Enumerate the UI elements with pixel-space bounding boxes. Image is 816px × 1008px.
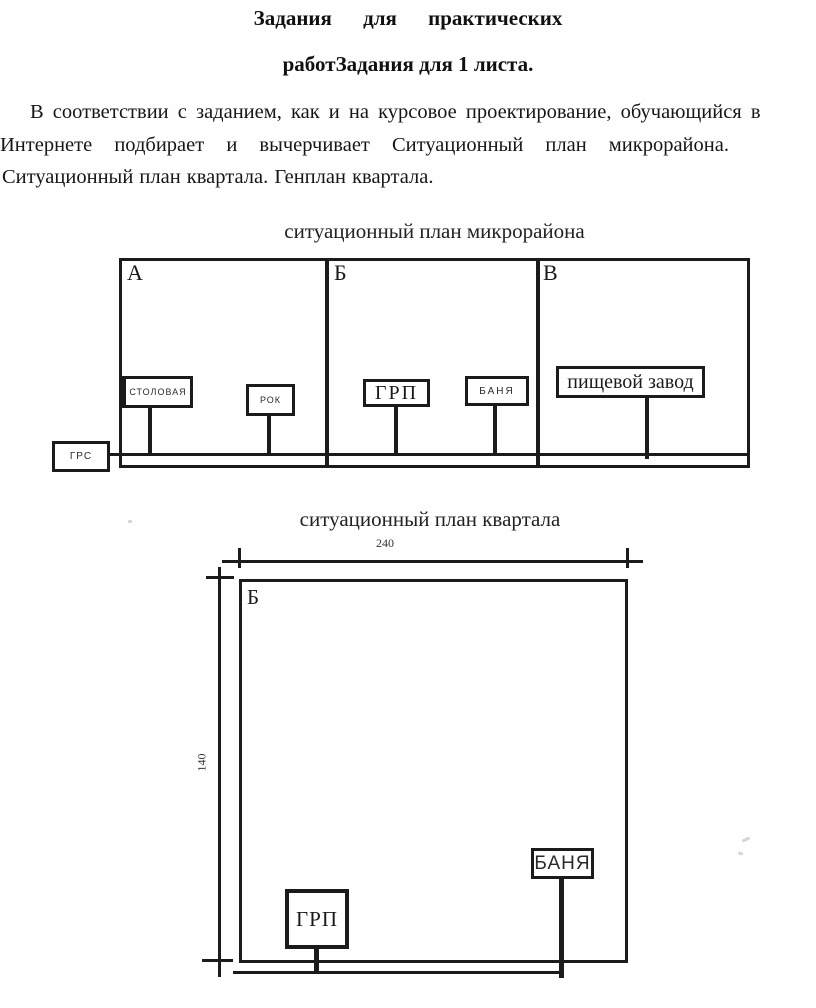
building-grs: ГРС [52,441,110,472]
dimension-label-140: 140 [195,745,210,781]
section-label-b: Б [334,260,347,286]
dimension-tick-bottom [202,959,233,962]
quarter-banya-stem [559,879,564,978]
paragraph-line-3: Ситуационный план квартала. Генплан квар… [2,166,433,189]
building-rok: РОК [246,384,295,416]
microdistrict-plan-title: ситуационный план микрорайона [119,219,750,244]
doc-title-line-1: Задания для практических [0,6,816,31]
quarter-banya-label: БАНЯ [534,853,590,875]
scan-noise [742,836,751,842]
food-plant-connection-stem [645,398,649,459]
paragraph-line-2: Интернете подбирает и вычерчивает Ситуац… [0,134,729,157]
gas-main-line [119,453,750,456]
quarter-building-banya: БАНЯ [531,848,594,879]
building-food-plant-label: пищевой завод [567,371,693,394]
dimension-tick-right [626,548,629,568]
section-divider-b-v [536,258,540,468]
dimension-tick-top [206,576,234,579]
grs-connector-line [110,453,119,456]
banya-connection-stem [493,406,497,456]
section-divider-a-b [325,258,329,468]
rok-connection-stem [267,416,271,456]
building-grs-label: ГРС [70,451,92,462]
dimension-label-240: 240 [355,536,415,551]
building-rok-label: РОК [260,395,281,405]
quarter-grp-label: ГРП [296,907,338,932]
building-food-plant: пищевой завод [556,366,705,398]
scan-noise [738,851,744,855]
dimension-tick-left [238,548,241,568]
stolovaya-connection-stem [148,408,152,456]
building-stolovaya: СТОЛОВАЯ [119,376,193,408]
quarter-section-label-b: Б [247,585,259,610]
building-grp-label: ГРП [375,382,418,405]
building-stolovaya-label: СТОЛОВАЯ [129,387,186,397]
microdistrict-plan-frame [119,258,750,468]
quarter-gas-line [233,971,563,974]
section-label-a: А [127,260,143,286]
dimension-line-vertical [218,567,221,977]
building-grp: ГРП [363,379,430,407]
quarter-plan-title: ситуационный план квартала [230,507,630,532]
dimension-line-horizontal [222,560,643,563]
scan-noise [128,520,132,523]
paragraph-line-1: В соответствии с заданием, как и на курс… [30,101,761,124]
doc-title-line-2: работЗадания для 1 листа. [0,52,816,77]
building-banya: БАНЯ [465,376,529,406]
section-label-v: В [543,260,558,286]
grp-connection-stem [394,407,398,456]
quarter-building-grp: ГРП [285,889,349,949]
building-banya-label: БАНЯ [479,386,514,397]
